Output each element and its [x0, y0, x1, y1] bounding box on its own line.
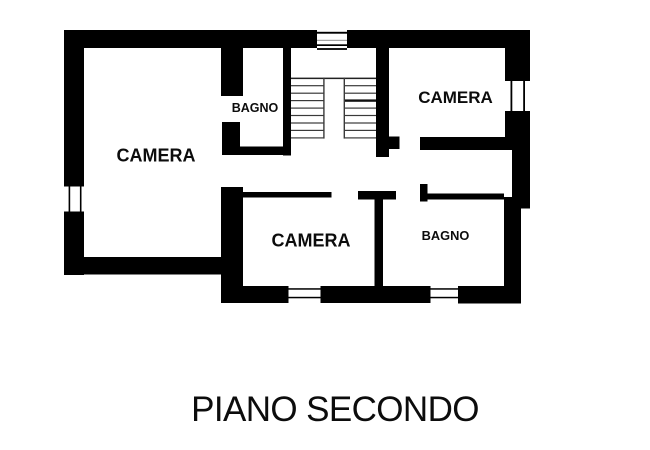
- svg-text:BAGNO: BAGNO: [232, 101, 279, 115]
- svg-text:PIANO SECONDO: PIANO SECONDO: [191, 390, 479, 429]
- svg-text:CAMERA: CAMERA: [272, 231, 351, 251]
- svg-text:CAMERA: CAMERA: [117, 146, 196, 166]
- svg-text:BAGNO: BAGNO: [422, 228, 470, 243]
- svg-text:CAMERA: CAMERA: [418, 88, 493, 107]
